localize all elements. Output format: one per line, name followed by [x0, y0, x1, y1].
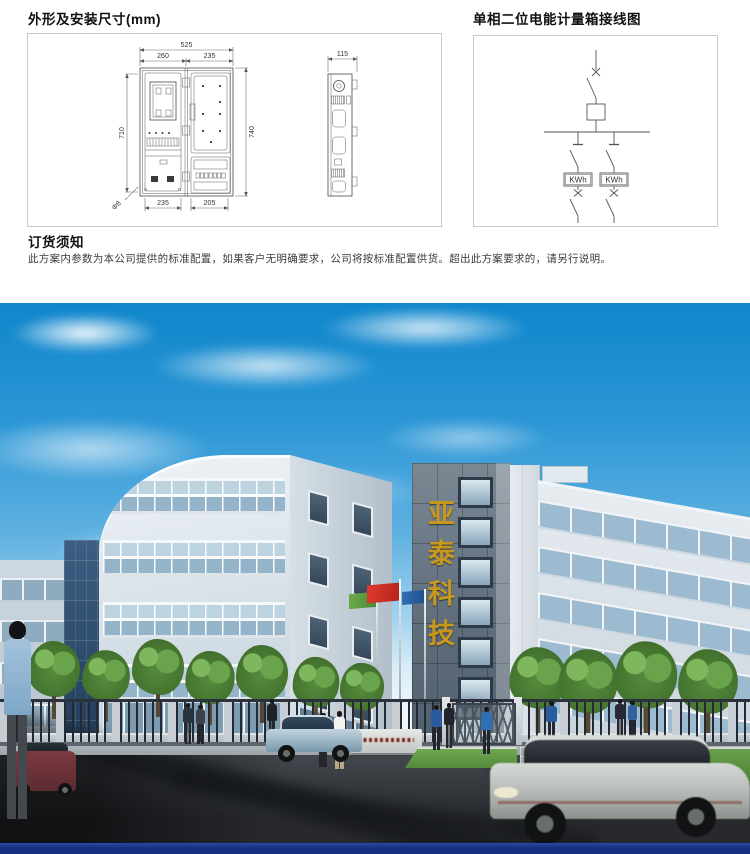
car-wheel	[524, 803, 566, 845]
wiring-diagram: KWh KWh	[474, 36, 717, 226]
order-notice-heading: 订货须知	[28, 231, 84, 251]
cloud	[320, 307, 530, 349]
dim-left-width: 260	[157, 53, 169, 60]
dim-bottom-right-width: 205	[204, 200, 216, 207]
wiring-panel: KWh KWh	[473, 35, 718, 227]
window	[458, 557, 493, 588]
window-band	[103, 540, 285, 576]
window	[458, 597, 493, 628]
window	[308, 614, 329, 651]
cloud	[10, 313, 160, 353]
blue-shirt	[4, 639, 31, 715]
window	[352, 502, 373, 539]
pedestrian-woman-foreground	[0, 621, 34, 849]
footer-bar	[0, 843, 750, 854]
hair	[9, 621, 26, 639]
flagpole	[424, 589, 426, 707]
order-notice-text: 此方案内参数为本公司提供的标准配置，如果客户无明确要求，公司将按标准配置供货。超…	[28, 251, 728, 266]
window	[458, 637, 493, 668]
kwh-meter-label-1: KWh	[569, 176, 586, 185]
china-flag-red	[367, 583, 399, 604]
pedestrian	[195, 705, 206, 747]
window	[458, 477, 493, 508]
dim-right-height: 740	[249, 126, 256, 138]
cloud	[380, 418, 550, 458]
moving-silver-car	[490, 735, 750, 854]
kwh-meter-label-2: KWh	[605, 176, 622, 185]
car-wheel	[58, 783, 72, 797]
pants	[7, 715, 27, 819]
dimensions-title: 外形及安装尺寸(mm)	[28, 8, 161, 28]
company-flag-blue	[402, 590, 424, 605]
dim-left-height: 710	[119, 127, 126, 139]
front-view-dimensions: 525 260 235 710 740 235 205 Φ8	[111, 42, 256, 212]
front-view-drawing	[140, 68, 233, 196]
catalog-page: 外形及安装尺寸(mm) 单相二位电能计量箱接线图	[0, 0, 750, 854]
flagpole	[399, 579, 401, 707]
car-wheel	[278, 745, 295, 762]
dim-bottom-left-width: 235	[157, 200, 169, 207]
dimension-drawing: 525 260 235 710 740 235 205 Φ8	[28, 34, 441, 226]
dim-total-width: 525	[181, 42, 193, 49]
pedestrian	[430, 705, 443, 753]
car-headlight	[494, 787, 518, 798]
wiring-title: 单相二位电能计量箱接线图	[473, 8, 641, 28]
cloud	[150, 343, 380, 389]
pedestrian	[443, 703, 455, 751]
window	[352, 626, 373, 663]
pedestrian	[182, 703, 194, 747]
window-row	[0, 578, 64, 602]
dim-depth: 115	[337, 51, 348, 58]
silver-sedan	[266, 715, 362, 763]
car-wheel	[332, 745, 349, 762]
window	[308, 552, 329, 589]
car-wheel	[676, 797, 716, 837]
dim-right-width: 235	[204, 53, 216, 60]
window	[308, 490, 329, 527]
window-band	[103, 602, 285, 638]
rooftop-structure	[542, 466, 588, 483]
side-view-drawing: 115	[328, 51, 357, 196]
dim-hole-diameter: Φ8	[111, 200, 123, 212]
company-building-photo: 亚泰科技	[0, 303, 750, 854]
window-band	[103, 478, 285, 514]
dimensions-panel: 525 260 235 710 740 235 205 Φ8	[27, 33, 442, 227]
window	[458, 517, 493, 548]
